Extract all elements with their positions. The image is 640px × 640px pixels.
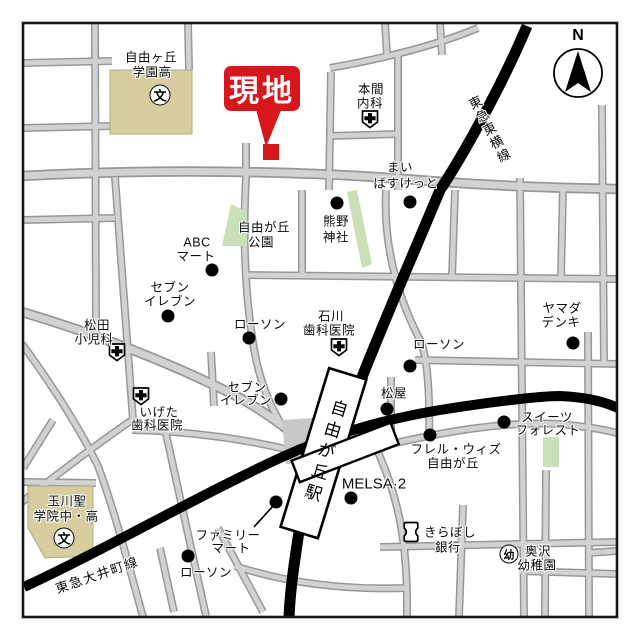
poi-label-my-basket-2: ばすけっと: [373, 178, 438, 191]
matsuya-dot: [381, 403, 394, 416]
yamada-denki-dot: [567, 337, 580, 350]
sweets-forest-dot: [498, 416, 511, 429]
poi-label-seven-eleven-south-2: イレブン: [220, 395, 272, 408]
poi-label-jiyugaoka-park-1: 自由が丘: [238, 222, 290, 235]
poi-label-ishikawa-dental-2: 歯科医院: [303, 325, 355, 338]
road-fill: [23, 420, 53, 468]
school-icon: 文: [54, 528, 75, 549]
poi-label-jiyugaoka-park-2: 公園: [248, 237, 274, 250]
poi-label-melsa-2: MELSA·2: [342, 478, 406, 491]
poi-label-frelle-with-1: フレル・ウィズ: [410, 444, 501, 457]
hospital-icon: [332, 339, 347, 356]
school-icon: 文: [150, 85, 171, 106]
site-square: [263, 144, 279, 160]
poi-label-jiyugaoka-gakuen-high-2: 学園高: [132, 67, 171, 80]
poi-label-seven-eleven-north-2: イレブン: [144, 296, 196, 309]
kumano-shrine-green: [347, 190, 372, 268]
melsa-2-dot: [345, 492, 358, 505]
poi-label-homma-naika-2: 内科: [357, 98, 383, 111]
poi-label-family-mart-2: マート: [211, 543, 250, 556]
seven-eleven-south-dot: [275, 393, 288, 406]
poi-label-abc-mart-2: マート: [176, 251, 215, 264]
abc-mart-dot: [206, 264, 219, 277]
poi-label-yamada-denki-1: ヤマダ: [542, 303, 581, 316]
road-fill: [602, 105, 604, 363]
compass-north-label: N: [572, 27, 584, 45]
poi-label-matsuda-pediatrics-2: 小児科: [74, 334, 113, 347]
road-fill: [22, 482, 96, 483]
poi-label-matsuda-pediatrics-1: 松田: [84, 320, 110, 333]
green-block-southeast: [543, 437, 559, 467]
road-fill: [545, 470, 546, 617]
poi-label-my-basket-1: まい: [387, 162, 413, 175]
poi-label-igeta-dental-2: 歯科医院: [131, 420, 183, 433]
compass: [554, 49, 602, 97]
poi-label-okusawa-kindergarten-1: 奥沢: [525, 546, 551, 559]
poi-label-yamada-denki-2: デンキ: [541, 317, 580, 330]
seven-eleven-north-dot: [162, 310, 175, 323]
hospital-icon: [363, 111, 378, 128]
road-fill: [330, 134, 398, 136]
frelle-with-dot: [424, 429, 437, 442]
road-fill: [587, 551, 617, 553]
poi-label-kiraboshi-bank-1: きらぼし: [424, 527, 476, 540]
poi-label-kiraboshi-bank-2: 銀行: [435, 542, 461, 555]
jiyugaoka-gakuen-building: [110, 70, 192, 134]
lawson-center-dot: [243, 332, 256, 345]
poi-label-matsuya: 松屋: [381, 388, 407, 401]
poi-label-lawson-south: ローソン: [180, 567, 232, 580]
lawson-east-dot: [404, 360, 417, 373]
lawson-south-dot: [182, 550, 195, 563]
family-mart-pointer-line: [254, 506, 273, 527]
site-marker-label: 現地: [229, 66, 295, 110]
road-fill: [329, 72, 331, 190]
road-fill: [561, 187, 563, 278]
road-fill: [22, 61, 112, 63]
my-basket-dot: [404, 196, 417, 209]
road-fill: [385, 23, 387, 55]
poi-label-okusawa-kindergarten-2: 幼稚園: [517, 560, 556, 573]
hospital-icon: [134, 388, 149, 405]
kumano-jinja-dot: [331, 197, 344, 210]
poi-label-homma-naika-1: 本間: [358, 84, 384, 97]
poi-label-seven-eleven-north-1: セブン: [150, 282, 189, 295]
poi-label-jiyugaoka-gakuen-high-1: 自由ヶ丘: [125, 52, 177, 65]
road-fill: [22, 218, 115, 220]
road-fill: [22, 126, 113, 128]
poi-label-frelle-with-2: 自由が丘: [427, 458, 479, 471]
road-fill: [160, 548, 174, 612]
road-fill: [95, 23, 96, 335]
poi-label-tamagawa-seigakuin-1: 玉川聖: [47, 496, 86, 509]
bank-icon: [404, 523, 418, 542]
poi-label-kumano-jinja-2: 神社: [323, 232, 349, 245]
road-fill: [330, 28, 478, 68]
poi-label-kumano-jinja-1: 熊野: [323, 216, 349, 229]
road-fill: [115, 177, 133, 420]
poi-label-tamagawa-seigakuin-2: 学院中・高: [33, 511, 98, 524]
poi-label-sweets-forest-2: フォレスト: [515, 425, 580, 438]
poi-label-lawson-center: ローソン: [234, 319, 286, 332]
road-fill: [188, 23, 189, 70]
poi-label-lawson-east: ローソン: [413, 339, 465, 352]
road-fill: [440, 23, 442, 55]
poi-label-abc-mart-1: ABC: [183, 237, 210, 250]
road-fill: [452, 190, 455, 278]
area-map: 現地 自由ヶ丘 学園高 文 本間 内科 まい ばすけっと 熊野 神社 自由が丘 …: [0, 0, 640, 640]
poi-label-ishikawa-dental-1: 石川: [318, 311, 344, 324]
family-mart-dot: [270, 496, 283, 509]
kindergarten-icon: 幼: [500, 545, 519, 564]
road-fill: [211, 352, 214, 406]
